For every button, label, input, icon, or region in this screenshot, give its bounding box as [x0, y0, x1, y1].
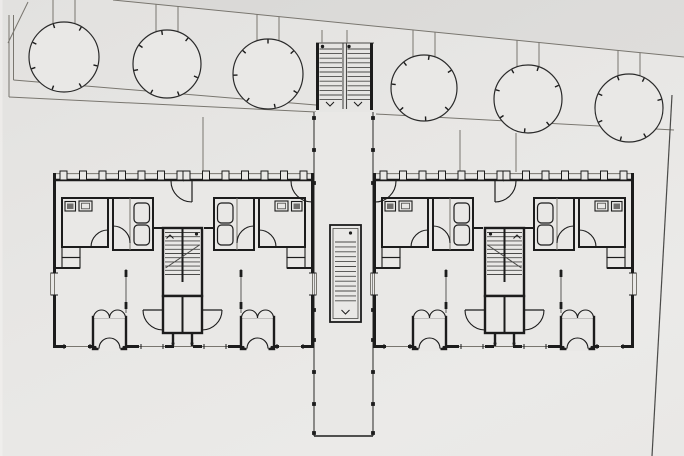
tree-canopy-4 [391, 55, 457, 121]
tree-canopy-6 [595, 74, 663, 142]
central-walkway-spine [312, 112, 375, 436]
west-building [51, 171, 317, 351]
east-building [371, 171, 637, 351]
architectural-site-plan [0, 0, 684, 456]
tree-canopy-2 [133, 30, 201, 98]
tree-canopy-3 [233, 39, 303, 109]
photo-edge-sliver [0, 0, 3, 456]
top-exterior-stair [316, 30, 374, 110]
floor-plan-drawing [0, 0, 684, 456]
tree-canopy-5 [494, 65, 562, 133]
tree-canopy-1 [29, 22, 99, 92]
